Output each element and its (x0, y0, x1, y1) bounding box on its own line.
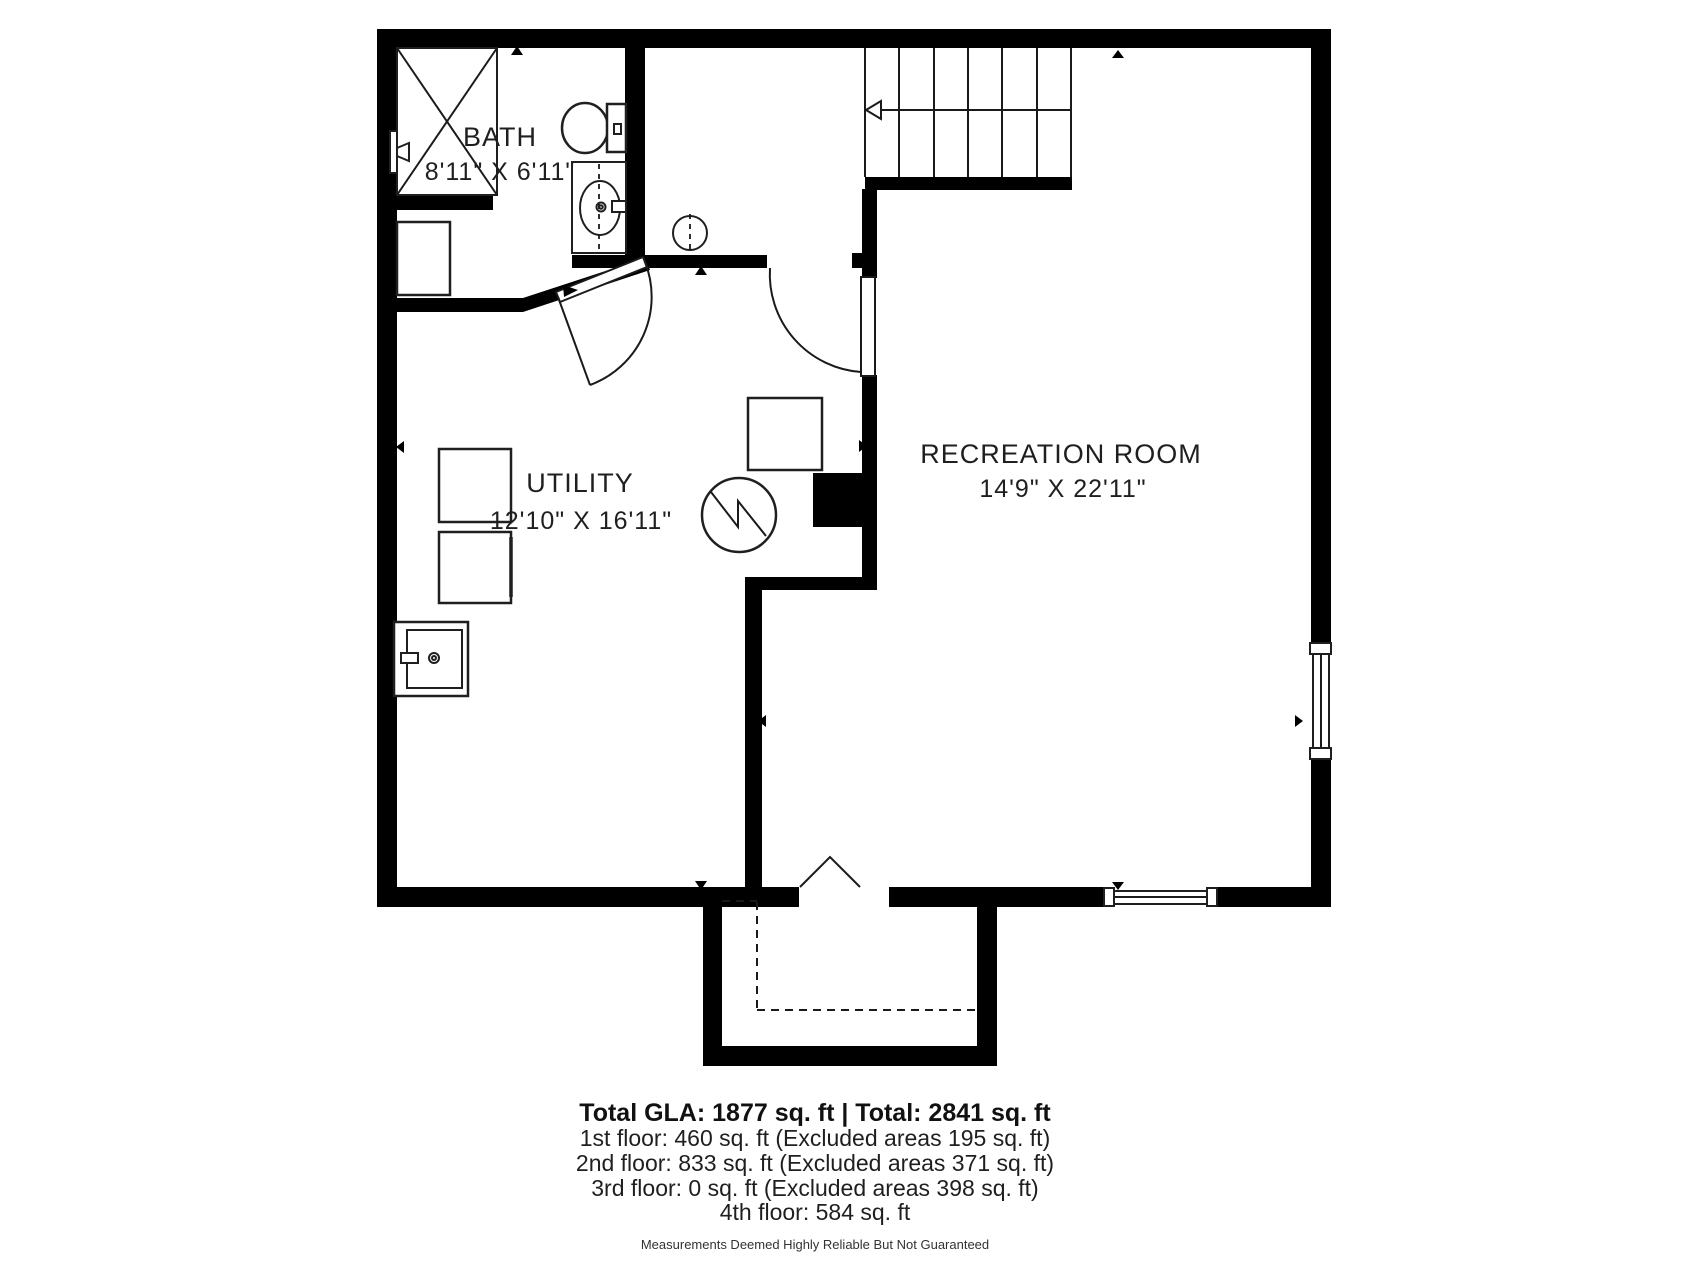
wall-divide-lower (745, 590, 762, 887)
entry-double-door-icon (800, 857, 860, 887)
window-right (1310, 643, 1331, 759)
wall-bath-bottom (572, 255, 767, 268)
water-heater-icon (702, 478, 776, 552)
stairs-direction-arrow (866, 101, 881, 119)
chimney-box (813, 473, 877, 527)
floorplan-drawing: BATH 8'11" X 6'11" UTILITY 12'10" X 16'1… (0, 0, 1706, 1280)
bath-door (556, 257, 652, 385)
wall-door-stub (852, 253, 877, 268)
stairs (865, 48, 1072, 177)
summary-total: Total GLA: 1877 sq. ft | Total: 2841 sq.… (579, 1099, 1051, 1127)
marker-up-rec (1112, 50, 1124, 58)
summary-floor-3: 3rd floor: 0 sq. ft (Excluded areas 398 … (591, 1175, 1038, 1201)
recreation-label: RECREATION ROOM (920, 439, 1202, 469)
toilet-icon (562, 103, 626, 153)
wall-divide-jog (745, 577, 877, 590)
vestibule-wall-right (977, 907, 997, 1066)
summary-disclaimer: Measurements Deemed Highly Reliable But … (641, 1237, 989, 1252)
wall-right-upper (1311, 29, 1331, 643)
window-bottom (1104, 888, 1217, 906)
recreation-door (770, 268, 875, 376)
wall-bottom-right (1217, 887, 1331, 907)
summary-floor-2: 2nd floor: 833 sq. ft (Excluded areas 37… (576, 1150, 1054, 1176)
wall-right-lower (1311, 757, 1331, 907)
summary-block: Total GLA: 1877 sq. ft | Total: 2841 sq.… (576, 1099, 1054, 1252)
vestibule-wall-bottom (703, 1046, 997, 1066)
wall-utility-north (377, 298, 523, 312)
wall-bottom-mid (889, 887, 1104, 907)
recreation-door-leaf (861, 277, 875, 376)
furnace-box-icon (748, 398, 822, 470)
summary-floor-4: 4th floor: 584 sq. ft (720, 1199, 911, 1225)
recreation-dims: 14'9" X 22'11" (979, 475, 1146, 503)
dryer-icon (439, 532, 511, 603)
wall-shower-stub (377, 196, 493, 210)
wall-bottom-left (377, 887, 799, 907)
utility-label: UTILITY (526, 468, 634, 498)
wall-top (377, 29, 1331, 48)
vestibule-wall-left (703, 907, 722, 1066)
sink-vanity-icon (572, 162, 626, 253)
floorplan-page: BATH 8'11" X 6'11" UTILITY 12'10" X 16'1… (0, 0, 1706, 1280)
summary-floor-1: 1st floor: 460 sq. ft (Excluded areas 19… (580, 1125, 1050, 1151)
marker-right-window (1295, 715, 1303, 727)
marker-left-utility (396, 441, 404, 453)
laundry-sink-icon (394, 622, 468, 696)
wall-bath-right (625, 48, 645, 268)
bath-dims: 8'11" X 6'11" (425, 158, 576, 186)
utility-dims: 12'10" X 16'11" (490, 507, 672, 535)
storage-box-icon (397, 222, 450, 295)
bath-label: BATH (463, 122, 537, 152)
wall-under-stairs (865, 177, 1072, 190)
hall-round-fixture-icon (673, 214, 707, 254)
